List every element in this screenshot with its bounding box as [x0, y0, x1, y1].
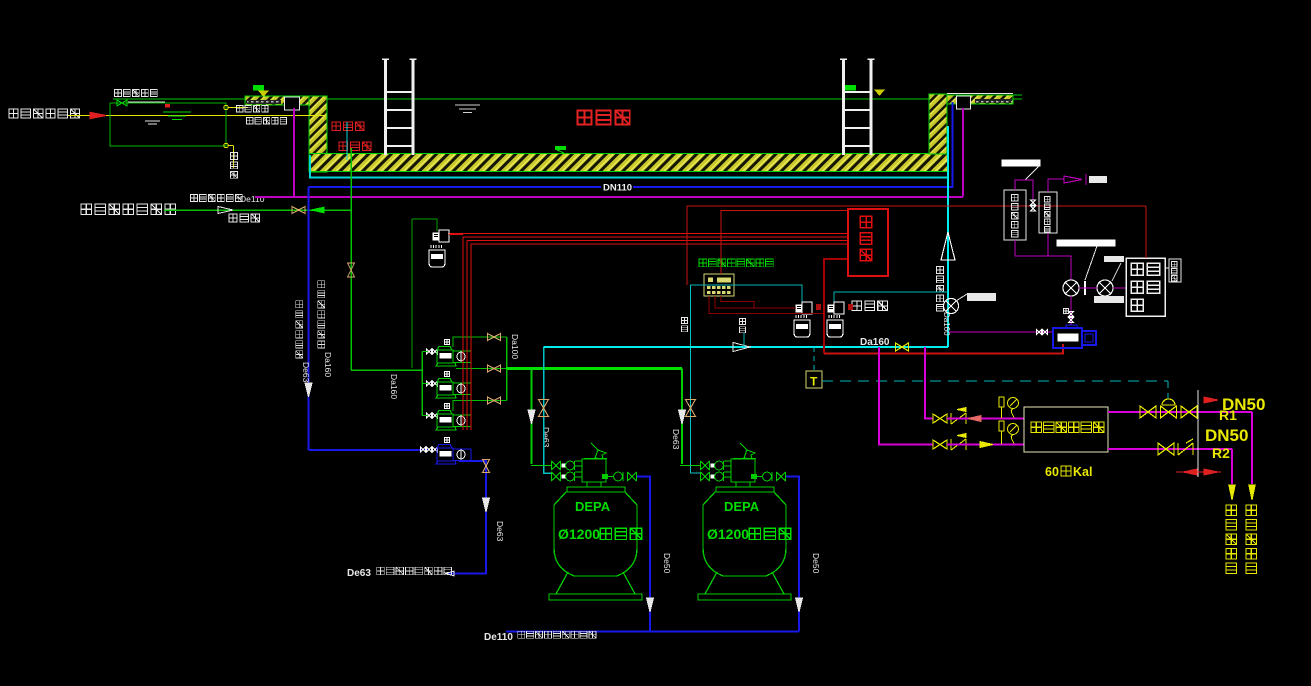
svg-text:De63: De63 — [541, 427, 551, 448]
svg-text:De63: De63 — [671, 429, 681, 450]
svg-text:Da160: Da160 — [389, 374, 399, 399]
svg-text:De63: De63 — [347, 568, 371, 579]
svg-text:De110: De110 — [484, 632, 513, 643]
svg-text:Da100: Da100 — [510, 334, 520, 359]
svg-text:Da160: Da160 — [323, 352, 333, 377]
svg-text:De50: De50 — [662, 553, 672, 574]
svg-text:De50: De50 — [811, 553, 821, 574]
svg-text:DN110: DN110 — [603, 183, 632, 194]
svg-text:DEPA: DEPA — [724, 499, 760, 514]
svg-text:Kal: Kal — [1073, 465, 1092, 479]
svg-text:Ø1200: Ø1200 — [558, 526, 600, 542]
svg-text:T: T — [810, 375, 818, 389]
svg-text:Da160: Da160 — [860, 337, 890, 348]
svg-text:R1: R1 — [1219, 407, 1237, 423]
svg-text:DN50: DN50 — [1205, 426, 1248, 445]
svg-text:De63: De63 — [495, 521, 505, 542]
svg-text:De63: De63 — [301, 362, 311, 383]
svg-text:De110: De110 — [240, 194, 265, 204]
svg-text:DEPA: DEPA — [575, 499, 611, 514]
svg-text:60: 60 — [1045, 465, 1059, 479]
svg-text:R2: R2 — [1212, 445, 1230, 461]
svg-text:Ø1200: Ø1200 — [707, 526, 749, 542]
